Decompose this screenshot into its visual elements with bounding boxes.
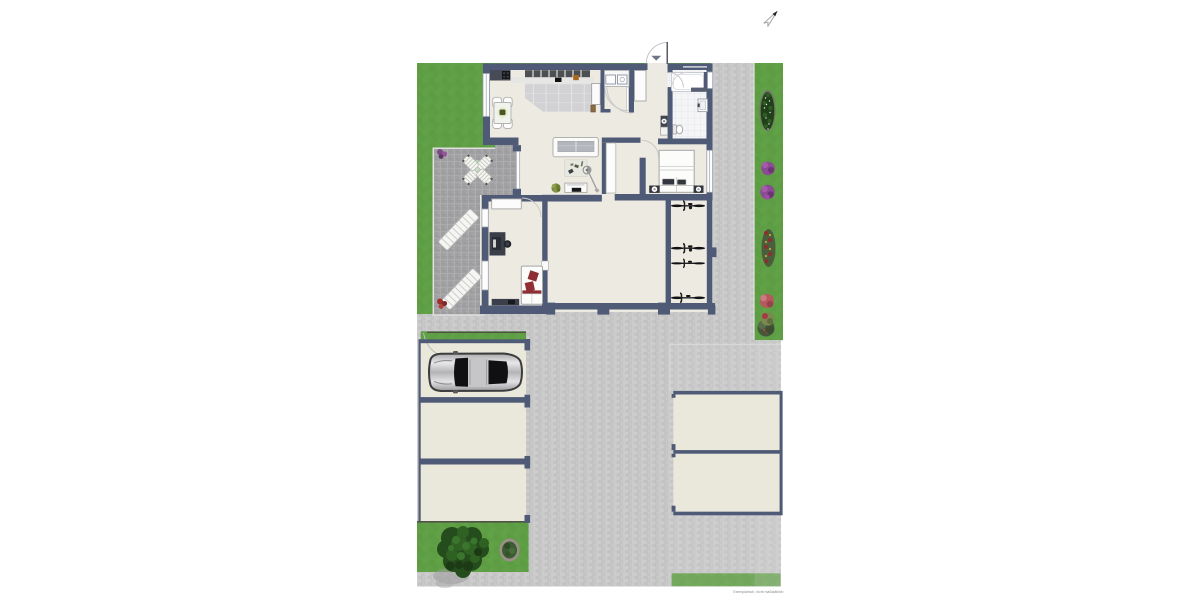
svg-text:Exemplarisch, nicht maßstäblic: Exemplarisch, nicht maßstäblich <box>733 590 783 594</box>
